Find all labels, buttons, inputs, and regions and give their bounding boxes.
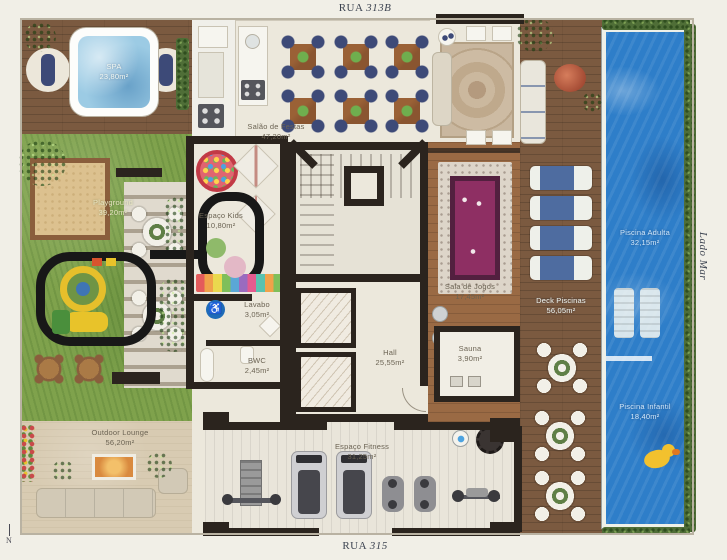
- bar-sink: [245, 34, 260, 49]
- outdoor-lounge-area: 56,20m²: [70, 438, 170, 448]
- bike-handle: [420, 479, 429, 488]
- kids-pool-name: Piscina Infantil: [608, 402, 682, 412]
- street-label-bottom: RUA 315: [280, 540, 450, 552]
- pool-deck-area: 56,05m²: [522, 306, 600, 316]
- accessible-icon: ♿: [206, 300, 225, 319]
- bike-seat: [388, 500, 397, 509]
- wall-segment: [428, 148, 520, 153]
- pouf-pink: [224, 256, 246, 278]
- hedge-strip: [684, 24, 696, 532]
- fitness-name: Espaço Fitness: [315, 442, 409, 452]
- spa-label: SPA 23,80m²: [78, 62, 150, 82]
- wall-segment: [206, 340, 284, 346]
- game-room-name: Sala de Jogos: [424, 282, 516, 292]
- wall-clock: [452, 430, 469, 447]
- barbell: [226, 498, 276, 503]
- pool-divider: [606, 356, 652, 361]
- dining-table: [384, 88, 430, 134]
- playground-label: Playground 39,20m²: [58, 198, 168, 218]
- barbell-plate: [222, 494, 233, 505]
- sun-lounger: [530, 166, 592, 190]
- kids-room-area: 10,80m²: [182, 221, 260, 231]
- deck-table: [534, 340, 590, 396]
- playground-area: 39,20m²: [58, 208, 168, 218]
- dining-table: [333, 88, 379, 134]
- ball-pit: [196, 150, 238, 192]
- armchair: [466, 26, 486, 41]
- bike-seat: [420, 500, 429, 509]
- wall-segment: [392, 528, 492, 536]
- outdoor-sofa: [36, 488, 156, 518]
- adult-pool-area: 32,15m²: [608, 238, 682, 248]
- hall-name: Hall: [352, 348, 428, 358]
- counter-sink: [198, 52, 224, 98]
- party-room-name: Salão de Festas: [238, 122, 314, 132]
- wall-segment: [186, 136, 194, 388]
- north-letter: N: [6, 536, 12, 545]
- floor-plan: RUA 313B RUA 315 Lado Mar N SPA 23,80m² …: [0, 0, 727, 560]
- bench-plate: [452, 490, 464, 502]
- deck-sofa: [520, 60, 546, 144]
- lavabo-area: 3,05m²: [232, 310, 282, 320]
- sauna-heater: [450, 376, 463, 387]
- hedge-strip: [176, 38, 189, 110]
- toy-tractor-body: [66, 312, 108, 332]
- rubber-duck-beak: [672, 449, 680, 455]
- game-room-label: Sala de Jogos 17,45m²: [424, 282, 516, 302]
- north-indicator: N: [6, 536, 12, 545]
- dining-table: [280, 34, 326, 80]
- wall-segment: [394, 422, 492, 430]
- fitness-label: Espaço Fitness 31,25m²: [315, 442, 409, 462]
- sauna-name: Sauna: [438, 344, 502, 354]
- lounge-sofa: [432, 52, 452, 126]
- wall-segment: [227, 528, 319, 536]
- hedge-strip: [602, 18, 690, 30]
- street-top-number: 313B: [366, 2, 391, 14]
- dining-table: [384, 34, 430, 80]
- sauna-area: 3,90m²: [438, 354, 502, 364]
- planter-icon: [146, 452, 172, 478]
- street-bottom-name: RUA: [342, 540, 366, 552]
- spa-lounge-chair-left: [41, 54, 55, 86]
- barbell-plate: [270, 494, 281, 505]
- stair-steps: [300, 154, 334, 270]
- pool-deck-label: Deck Piscinas 56,05m²: [522, 296, 600, 316]
- dining-table: [333, 34, 379, 80]
- pouf-green: [206, 238, 226, 258]
- elevator: [296, 352, 356, 412]
- wall-segment: [116, 168, 162, 177]
- armchair: [492, 26, 512, 41]
- kids-pool-label: Piscina Infantil 18,40m²: [608, 402, 682, 422]
- wall-segment: [186, 382, 284, 389]
- wall-segment: [203, 522, 229, 536]
- sauna-zone: [434, 326, 520, 402]
- bwc-name: BWC: [232, 356, 282, 366]
- toy-block-yellow: [106, 258, 116, 266]
- side-table: [438, 28, 456, 46]
- spa-name: SPA: [78, 62, 150, 72]
- pool-table: [450, 176, 500, 280]
- wall-segment: [227, 422, 327, 430]
- sauna-heater: [468, 376, 481, 387]
- street-label-top: RUA 313B: [280, 2, 450, 14]
- wall-segment: [288, 282, 296, 422]
- hall-label: Hall 25,55m²: [352, 348, 428, 368]
- accessible-glyph: ♿: [209, 303, 223, 315]
- wall-segment: [490, 522, 520, 536]
- street-top-name: RUA: [339, 2, 363, 14]
- stair-landing: [344, 166, 384, 206]
- outdoor-lounge-label: Outdoor Lounge 56,20m²: [70, 428, 170, 448]
- pool-deck-name: Deck Piscinas: [522, 296, 600, 306]
- wall-segment: [490, 418, 520, 442]
- sauna-label: Sauna 3,90m²: [438, 344, 502, 364]
- flower-bed: [20, 424, 35, 482]
- picnic-table: [72, 352, 106, 386]
- lado-mar-text: Lado Mar: [697, 232, 709, 280]
- kids-room-label: Espaço Kids 10,80m²: [182, 211, 260, 231]
- plant-icon: [24, 22, 56, 52]
- carousel-center: [76, 282, 90, 296]
- plant-icon: [582, 92, 602, 112]
- treadmill-belt: [298, 470, 320, 514]
- wall-segment: [288, 414, 428, 422]
- bar-stove: [241, 80, 265, 100]
- north-arrow-icon: [9, 524, 10, 536]
- hall-area: 25,55m²: [352, 358, 428, 368]
- spa-lounge-chair-right: [159, 54, 173, 86]
- sun-lounger: [530, 256, 592, 280]
- lavabo-name: Lavabo: [232, 300, 282, 310]
- toy-car-track-bridge: [150, 250, 202, 259]
- toy-block-red: [92, 258, 102, 266]
- fire-table: [92, 454, 136, 480]
- picnic-table: [32, 352, 66, 386]
- submerged-lounger: [614, 288, 634, 338]
- appliance: [198, 26, 228, 48]
- adult-pool-label: Piscina Adulta 32,15m²: [608, 228, 682, 248]
- bench-pad: [466, 488, 488, 497]
- kids-room-name: Espaço Kids: [182, 211, 260, 221]
- hedge-strip: [602, 527, 690, 535]
- street-bottom-number: 315: [370, 540, 388, 552]
- stove: [198, 104, 224, 128]
- coral-plant-icon: [554, 64, 586, 92]
- submerged-lounger: [640, 288, 660, 338]
- wall-segment: [203, 412, 229, 430]
- armchair: [492, 130, 512, 145]
- party-room-label: Salão de Festas 47,20m²: [238, 122, 314, 142]
- toy-tractor-cab: [52, 310, 70, 334]
- fitness-area: 31,25m²: [315, 452, 409, 462]
- playground-name: Playground: [58, 198, 168, 208]
- wall-segment: [436, 14, 524, 24]
- lavabo-label: Lavabo 3,05m²: [232, 300, 282, 320]
- outdoor-lounge-name: Outdoor Lounge: [70, 428, 170, 438]
- bwc-area: 2,45m²: [232, 366, 282, 376]
- game-room-area: 17,45m²: [424, 292, 516, 302]
- elevator: [296, 288, 356, 348]
- wall-segment: [112, 372, 160, 384]
- deck-table: [532, 408, 588, 464]
- bwc-label: BWC 2,45m²: [232, 356, 282, 376]
- party-room-area: 47,20m²: [238, 132, 314, 142]
- bwc-vanity: [200, 348, 214, 382]
- spa-area: 23,80m²: [78, 72, 150, 82]
- wall-segment: [280, 142, 288, 422]
- side-label-lado-mar: Lado Mar: [697, 221, 709, 291]
- deck-table: [532, 468, 588, 524]
- bike-handle: [388, 479, 397, 488]
- planter-icon: [52, 460, 74, 482]
- round-stool: [432, 306, 448, 322]
- treadmill-belt: [343, 470, 365, 514]
- adult-pool-name: Piscina Adulta: [608, 228, 682, 238]
- armchair: [466, 130, 486, 145]
- bench-plate: [488, 490, 500, 502]
- kids-pool-area: 18,40m²: [608, 412, 682, 422]
- tree-icon: [18, 140, 66, 186]
- sun-lounger: [530, 226, 592, 250]
- sun-lounger: [530, 196, 592, 220]
